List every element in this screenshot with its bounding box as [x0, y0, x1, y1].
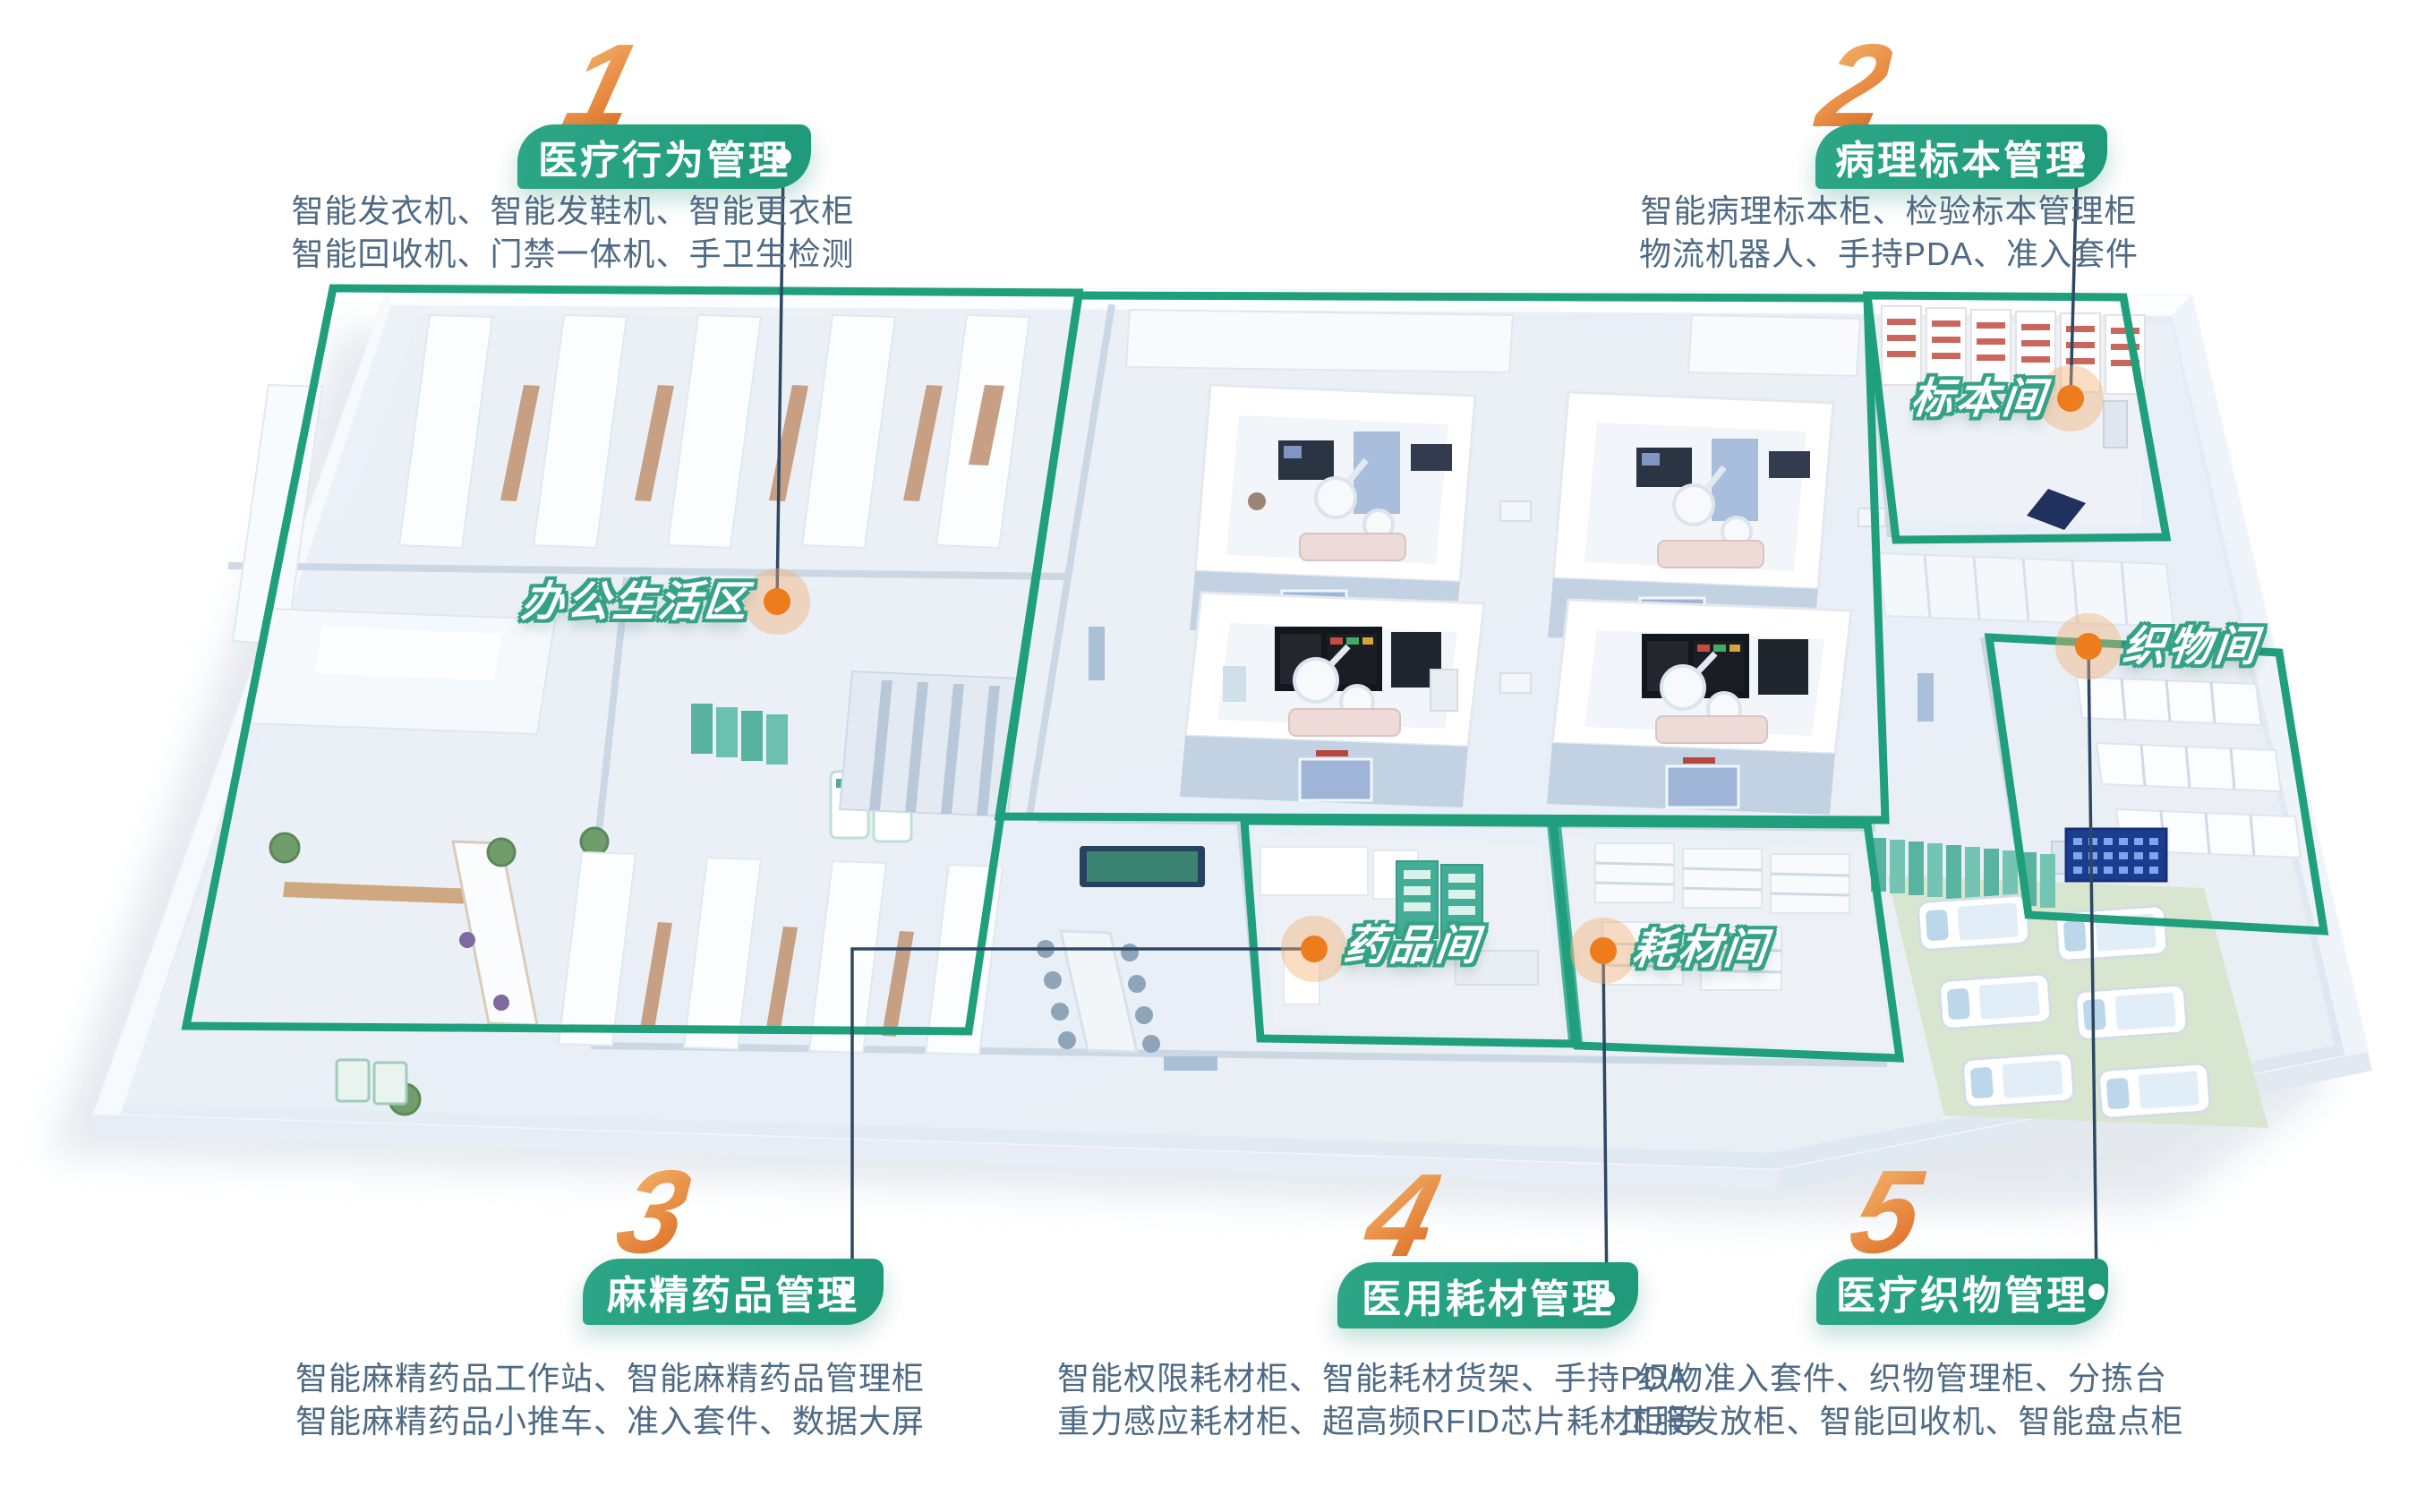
- section3-description: 智能麻精药品工作站、智能麻精药品管理柜 智能麻精药品小推车、准入套件、数据大屏: [295, 1357, 922, 1443]
- section4-banner: 医用耗材管理: [1337, 1262, 1638, 1328]
- section5-desc-line1: 织物准入套件、织物管理柜、分拣台: [1589, 1357, 2216, 1400]
- textile-room-marker: [2075, 633, 2102, 660]
- drug-room-label: 药品间: [1343, 924, 1484, 966]
- drug-room-marker: [1301, 935, 1328, 962]
- section1-banner: 医疗行为管理: [517, 124, 811, 189]
- section2-banner-dot: [2069, 149, 2085, 165]
- section2-description: 智能病理标本柜、检验标本管理柜 物流机器人、手持PDA、准入套件: [1576, 190, 2202, 276]
- section3-banner-dot: [838, 1284, 854, 1300]
- section1-title: 医疗行为管理: [538, 128, 790, 185]
- section1-description: 智能发衣机、智能发鞋机、智能更衣柜 智能回收机、门禁一体机、手卫生检测: [260, 190, 886, 276]
- section2-desc-line1: 智能病理标本柜、检验标本管理柜: [1576, 190, 2202, 233]
- section4-title: 医用耗材管理: [1362, 1267, 1614, 1324]
- section1-desc-line2: 智能回收机、门禁一体机、手卫生检测: [260, 233, 886, 276]
- section2-banner: 病理标本管理: [1815, 124, 2107, 189]
- section5-title: 医疗织物管理: [1836, 1263, 2088, 1320]
- specimen-room-marker: [2057, 385, 2084, 412]
- section3-title: 麻精药品管理: [607, 1263, 859, 1320]
- section2-desc-line2: 物流机器人、手持PDA、准入套件: [1576, 233, 2202, 276]
- section4-banner-dot: [1599, 1291, 1615, 1307]
- section5-description: 织物准入套件、织物管理柜、分拣台 工服发放柜、智能回收机、智能盘点柜: [1589, 1357, 2216, 1443]
- section1-banner-dot: [775, 149, 791, 165]
- textile-room-label: 织物间: [2122, 625, 2263, 667]
- section5-desc-line2: 工服发放柜、智能回收机、智能盘点柜: [1589, 1400, 2216, 1443]
- office-zone-marker: [764, 588, 790, 615]
- section5-banner-dot: [2088, 1284, 2105, 1300]
- specimen-room: [1878, 306, 2174, 627]
- specimen-room-label: 标本间: [1909, 377, 2051, 419]
- section5-banner: 医疗织物管理: [1816, 1259, 2108, 1325]
- section3-desc-line2: 智能麻精药品小推车、准入套件、数据大屏: [295, 1400, 922, 1443]
- consumable-room-marker: [1590, 937, 1617, 964]
- office-zone-label: 办公生活区: [520, 580, 753, 622]
- consumable-room-label: 耗材间: [1631, 927, 1772, 970]
- section3-desc-line1: 智能麻精药品工作站、智能麻精药品管理柜: [295, 1357, 922, 1400]
- section1-desc-line1: 智能发衣机、智能发鞋机、智能更衣柜: [260, 190, 886, 233]
- section2-title: 病理标本管理: [1835, 128, 2088, 185]
- smart-hospital-infographic: 办公生活区 标本间 织物间 药品间 耗材间 1 医疗行为管理 智能发衣机、智能发…: [0, 0, 2417, 1512]
